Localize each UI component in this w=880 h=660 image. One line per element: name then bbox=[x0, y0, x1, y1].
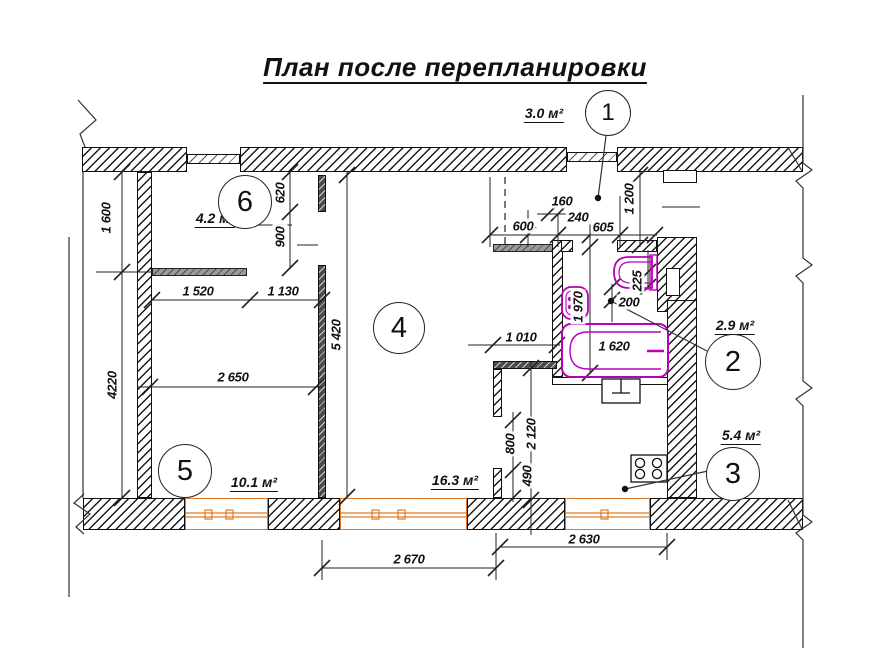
dim-2630: 2 630 bbox=[566, 532, 601, 547]
room-marker-2: 2 bbox=[705, 334, 761, 390]
dim-1200: 1 200 bbox=[622, 181, 637, 216]
area-label-room3: 5.4 м² bbox=[721, 427, 761, 445]
dim-900: 900 bbox=[273, 225, 288, 250]
floor-plan-title: План после перепланировки bbox=[255, 52, 655, 83]
dim-2650: 2 650 bbox=[215, 370, 250, 385]
room-marker-1: 1 bbox=[585, 90, 631, 136]
room-marker-5: 5 bbox=[158, 444, 212, 498]
room-marker-3: 3 bbox=[706, 447, 760, 501]
dim-800: 800 bbox=[503, 432, 518, 457]
dim-5420: 5 420 bbox=[329, 317, 344, 352]
room-number-6: 6 bbox=[237, 186, 253, 219]
dim-160: 160 bbox=[550, 194, 575, 209]
dim-1970: 1 970 bbox=[571, 289, 586, 324]
area-label-room4: 16.3 м² bbox=[431, 472, 479, 490]
dim-240: 240 bbox=[566, 210, 591, 225]
area-label-room5: 10.1 м² bbox=[230, 474, 278, 492]
stove-icon bbox=[631, 455, 667, 482]
dim-600: 600 bbox=[511, 219, 536, 234]
dim-620: 620 bbox=[273, 181, 288, 206]
room-number-4: 4 bbox=[391, 312, 407, 345]
room-marker-6: 6 bbox=[218, 175, 272, 229]
dim-1600: 1 600 bbox=[99, 200, 114, 235]
dim-2120: 2 120 bbox=[524, 416, 539, 451]
break-lines bbox=[69, 95, 812, 648]
dim-4220: 4220 bbox=[105, 369, 120, 401]
room-number-5: 5 bbox=[177, 455, 193, 488]
room-number-1: 1 bbox=[601, 99, 614, 127]
dim-1010: 1 010 bbox=[503, 330, 538, 345]
dim-1520: 1 520 bbox=[180, 284, 215, 299]
dim-200: 200 bbox=[617, 295, 642, 310]
dim-605: 605 bbox=[591, 220, 616, 235]
dim-490: 490 bbox=[520, 464, 535, 489]
area-label-room2: 2.9 м² bbox=[715, 317, 755, 335]
dim-225: 225 bbox=[630, 269, 645, 294]
area-label-room1: 3.0 м² bbox=[524, 105, 564, 123]
room-marker-4: 4 bbox=[373, 302, 425, 354]
dim-1620: 1 620 bbox=[596, 339, 631, 354]
dim-1130: 1 130 bbox=[265, 284, 300, 299]
room-number-2: 2 bbox=[725, 346, 741, 379]
dim-2670: 2 670 bbox=[391, 552, 426, 567]
window-glazing bbox=[185, 510, 650, 519]
kitchen-sink-icon bbox=[602, 379, 640, 403]
floor-plan: План после перепланировки bbox=[0, 0, 880, 660]
room-number-3: 3 bbox=[725, 458, 741, 491]
